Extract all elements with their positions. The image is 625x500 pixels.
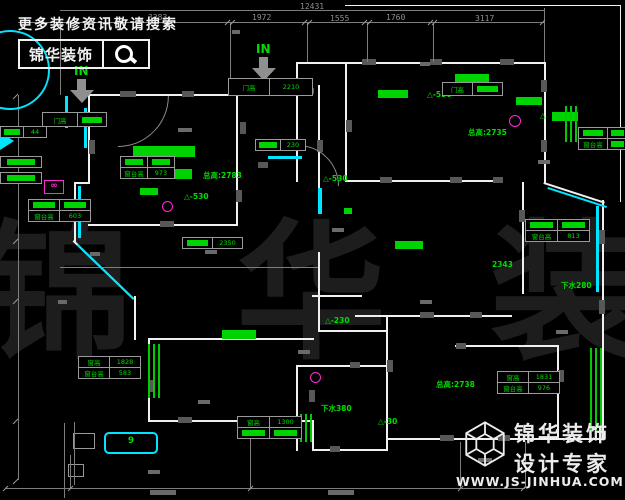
table-cell-highlight — [121, 157, 147, 167]
label-table: 230 — [255, 139, 306, 151]
entrance-arrow-stem — [259, 57, 268, 68]
dimension-tick — [13, 479, 19, 485]
label-table: 窗高1831窗台高976 — [497, 371, 560, 394]
dimension-text-blur — [420, 62, 430, 66]
dimension-label: 3117 — [475, 14, 494, 23]
wall-block — [380, 177, 392, 183]
dimension-label: 1972 — [252, 13, 271, 22]
wall-segment — [134, 296, 136, 340]
wall-segment — [455, 345, 559, 347]
label-table: 窗台高 — [578, 127, 625, 150]
table-cell: 窗台高 — [498, 383, 528, 393]
table-cell-highlight — [526, 220, 557, 230]
table-cell: 583 — [110, 368, 140, 378]
annotation-text: 总高:2738 — [436, 379, 475, 390]
table-cell-highlight — [608, 128, 625, 138]
table-cell: 603 — [60, 211, 90, 221]
wall-block — [330, 446, 340, 452]
dimension-text-blur — [232, 30, 240, 34]
dimension-text-blur — [328, 490, 354, 495]
table-cell-highlight — [1, 157, 41, 167]
window-hatch — [565, 106, 577, 142]
wall-segment — [345, 180, 502, 182]
dimension-text-blur — [178, 128, 192, 132]
wall-block — [236, 190, 242, 202]
table-cell: 门高 — [229, 79, 269, 95]
annotation-text: △-530 — [184, 192, 209, 201]
entrance-arrow-head — [70, 90, 94, 103]
wall-block — [160, 221, 174, 227]
table-cell-highlight — [579, 128, 607, 138]
label-highlight — [516, 97, 542, 105]
promo-search-hint: 更多装修资讯敬请搜索 — [18, 14, 178, 34]
table-cell: 窗台高 — [121, 168, 147, 178]
window-line — [77, 244, 134, 300]
annotation-text: △ — [540, 111, 546, 120]
wall-segment — [236, 94, 238, 226]
wall-block — [430, 59, 442, 65]
symbol-marker: ∞ — [44, 180, 64, 194]
dimension-label: 1760 — [386, 13, 405, 22]
annotation-text: 总高:2783 — [203, 170, 242, 181]
dimension-line — [367, 22, 368, 62]
label-table: 窗台高813 — [525, 219, 590, 242]
table-cell: 窗台高 — [526, 231, 557, 241]
table-cell-highlight — [558, 220, 589, 230]
wall-segment — [386, 315, 388, 334]
table-cell-highlight — [78, 113, 106, 126]
dimension-line — [433, 22, 434, 62]
table-cell: 窗高 — [238, 417, 269, 427]
dimension-line — [307, 22, 308, 62]
table-cell: 230 — [281, 140, 305, 150]
table-cell: 门高 — [43, 113, 77, 126]
label-highlight — [222, 330, 256, 339]
brand-url: WWW.JS-JINHUA.COM — [456, 474, 624, 489]
label-table: 2350 — [182, 237, 243, 249]
wall-segment — [312, 420, 314, 451]
table-cell-highlight — [60, 200, 90, 210]
dimension-line — [64, 423, 65, 498]
promo-logo-box: 锦华装饰 — [18, 39, 150, 69]
label-highlight — [140, 188, 158, 195]
symbol-marker — [310, 372, 321, 383]
label-table — [0, 156, 42, 168]
dimension-line — [18, 95, 19, 480]
table-cell: 973 — [148, 168, 174, 178]
promo-banner: 更多装修资讯敬请搜索 锦华装饰 — [18, 14, 178, 69]
table-cell: 门高 — [443, 83, 472, 95]
wall-segment — [345, 5, 621, 6]
label-table: 窗台高973 — [120, 156, 175, 179]
label-highlight — [344, 208, 352, 214]
annotation-text: △-530 — [323, 174, 348, 183]
wall-block — [350, 362, 360, 368]
wall-block — [182, 91, 194, 97]
table-cell: 窗台高 — [579, 139, 607, 149]
label-table: 窗高1828窗台高583 — [78, 356, 141, 379]
promo-logo-text: 锦华装饰 — [20, 44, 102, 65]
label-highlight — [455, 74, 489, 82]
label-table: 窗高1300 — [237, 416, 302, 439]
table-cell: 2350 — [213, 238, 242, 248]
dimension-line — [70, 455, 71, 488]
wall-segment — [318, 252, 320, 332]
dimension-line — [230, 22, 231, 80]
table-cell-highlight — [256, 140, 280, 150]
table-cell: 44 — [24, 127, 46, 137]
wall-block — [362, 59, 376, 65]
wall-block — [89, 140, 95, 154]
table-cell-highlight — [1, 173, 41, 183]
table-cell: 窗高 — [498, 372, 528, 382]
annotation-text: △-230 — [325, 316, 350, 325]
table-cell: 2210 — [270, 79, 312, 95]
fixture-box — [73, 433, 95, 449]
table-cell-highlight — [1, 127, 23, 137]
label-table: 门高2210 — [228, 78, 313, 96]
table-cell: 窗高 — [79, 357, 109, 367]
annotation-text: △-30 — [378, 417, 397, 426]
window-line — [596, 206, 599, 292]
table-cell-highlight — [29, 200, 59, 210]
wall-block — [541, 80, 547, 92]
annotation-text: 总高:2735 — [468, 127, 507, 138]
window-hatch — [148, 344, 161, 398]
table-cell-highlight — [238, 428, 269, 438]
annotation-text: 下水280 — [561, 280, 592, 291]
dimension-line — [544, 8, 545, 62]
label-table: 窗台高603 — [28, 199, 91, 222]
dimension-text-blur — [205, 250, 217, 254]
wall-block — [387, 360, 393, 372]
wall-block — [456, 343, 466, 349]
wall-segment — [620, 5, 621, 202]
label-highlight — [378, 90, 408, 98]
dimension-text-blur — [198, 400, 210, 404]
dimension-text-blur — [150, 490, 176, 495]
window-line — [268, 156, 302, 159]
wall-block — [599, 230, 605, 244]
brand-cube-icon — [460, 418, 510, 470]
wall-block — [493, 177, 503, 183]
table-cell: 813 — [558, 231, 589, 241]
table-cell: 976 — [529, 383, 559, 393]
table-cell: 1300 — [270, 417, 301, 427]
wall-block — [470, 312, 482, 318]
entrance-label: IN — [256, 42, 271, 56]
dimension-text-blur — [538, 160, 550, 164]
table-cell: 1831 — [529, 372, 559, 382]
wall-segment — [543, 182, 604, 204]
label-table: 门高 — [42, 112, 107, 127]
label-table — [0, 172, 42, 184]
dimension-text-blur — [148, 470, 160, 474]
wall-block — [450, 177, 462, 183]
wall-block — [240, 122, 246, 134]
dimension-text-blur — [556, 330, 568, 334]
dimension-line — [74, 422, 75, 485]
table-cell: 窗台高 — [79, 368, 109, 378]
wall-block — [599, 300, 605, 314]
dimension-text-blur — [332, 228, 344, 232]
wall-block — [440, 435, 454, 441]
table-cell-highlight — [608, 139, 625, 149]
dimension-line — [5, 488, 525, 489]
label-table: 门高 — [442, 82, 503, 96]
equipment-box: 9 — [104, 432, 158, 454]
table-cell: 1828 — [110, 357, 140, 367]
window-line — [547, 187, 607, 208]
wall-segment — [312, 449, 388, 451]
brand-name: 锦华装饰 — [514, 418, 610, 448]
symbol-marker — [162, 201, 173, 212]
annotation-text: 下水380 — [321, 403, 352, 414]
table-cell-highlight — [473, 83, 502, 95]
window-line — [318, 188, 322, 214]
wall-block — [309, 390, 315, 402]
wall-block — [346, 120, 352, 132]
cad-floorplan-canvas: 锦 华 装 饰 1243132831972155517603117总高:2783… — [0, 0, 625, 500]
symbol-marker — [509, 115, 521, 127]
dimension-text-blur — [90, 252, 100, 256]
entrance-arrow-stem — [77, 79, 86, 90]
wall-block — [500, 59, 514, 65]
dimension-text-blur — [58, 300, 67, 304]
dimension-label: 1555 — [330, 14, 349, 23]
wall-segment — [522, 182, 524, 294]
wall-segment — [312, 295, 362, 297]
wall-segment — [386, 332, 388, 451]
table-cell: 窗台高 — [29, 211, 59, 221]
label-highlight — [395, 241, 423, 249]
table-cell-highlight — [183, 238, 212, 248]
wall-segment — [318, 330, 388, 332]
label-table: 44 — [0, 126, 47, 138]
dimension-label: 12431 — [300, 2, 324, 11]
wall-segment — [296, 365, 388, 367]
wall-block — [541, 140, 547, 152]
dimension-text-blur — [420, 300, 432, 304]
dimension-text-blur — [298, 350, 310, 354]
table-cell-highlight — [270, 428, 301, 438]
table-cell-highlight — [148, 157, 174, 167]
annotation-text: 2343 — [492, 260, 513, 269]
wall-block — [178, 417, 192, 423]
wall-block — [420, 312, 434, 318]
search-icon — [104, 41, 148, 67]
search-handle — [129, 56, 137, 64]
